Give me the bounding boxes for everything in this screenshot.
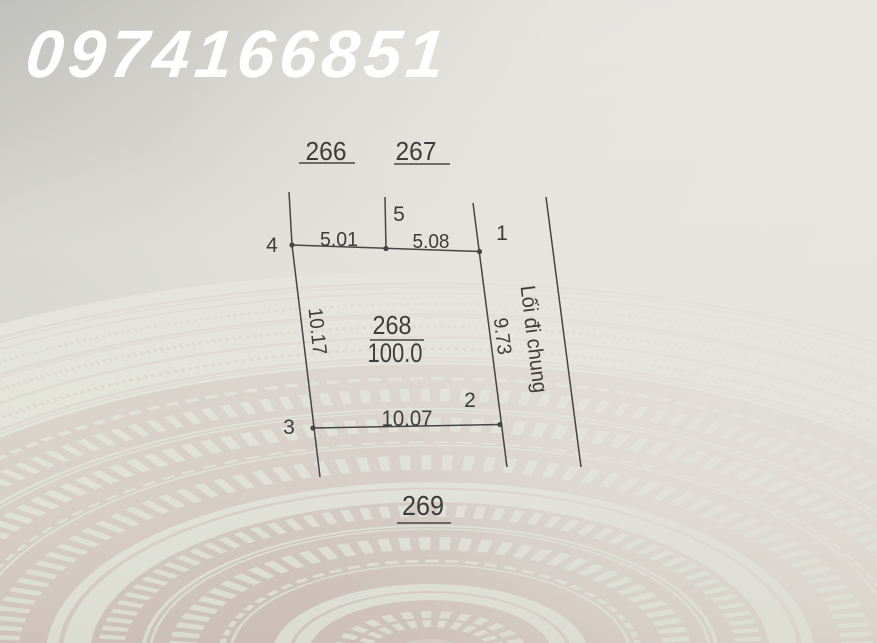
svg-text:267: 267 bbox=[396, 136, 437, 166]
svg-text:268: 268 bbox=[373, 310, 412, 340]
svg-text:3: 3 bbox=[283, 416, 295, 439]
svg-text:5: 5 bbox=[393, 203, 405, 226]
svg-text:5.01: 5.01 bbox=[320, 229, 358, 251]
svg-text:266: 266 bbox=[306, 136, 347, 166]
svg-text:5.08: 5.08 bbox=[413, 231, 450, 253]
svg-text:0974166851: 0974166851 bbox=[22, 17, 452, 92]
svg-text:100.0: 100.0 bbox=[368, 338, 423, 368]
svg-text:1: 1 bbox=[496, 222, 508, 245]
svg-text:9.73: 9.73 bbox=[489, 317, 515, 356]
svg-text:269: 269 bbox=[402, 490, 444, 521]
svg-text:10.07: 10.07 bbox=[382, 406, 433, 431]
svg-text:4: 4 bbox=[266, 234, 278, 257]
svg-text:2: 2 bbox=[464, 389, 476, 412]
